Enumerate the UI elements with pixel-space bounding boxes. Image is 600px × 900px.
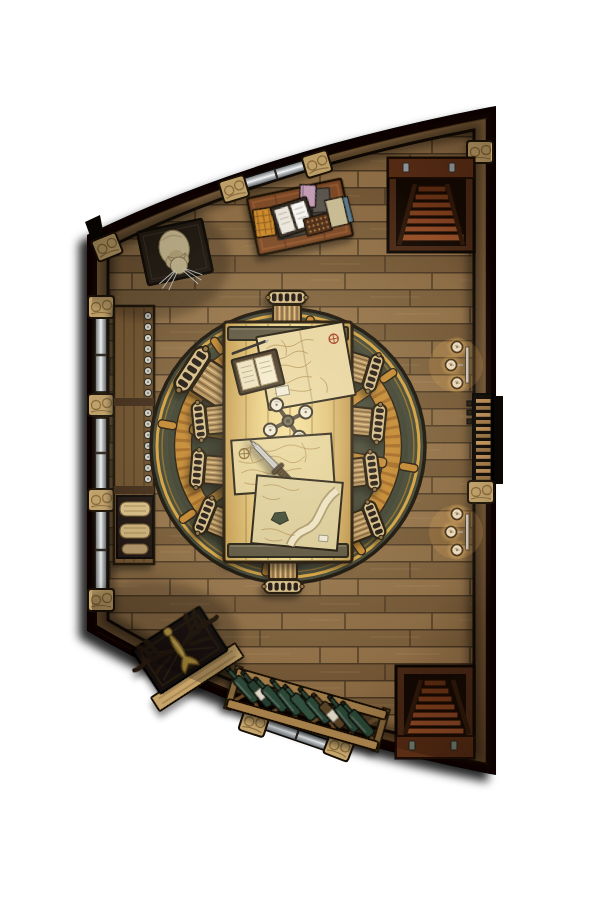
sconce-glow-lower — [429, 505, 483, 559]
battle-map-figure — [0, 0, 600, 900]
map-canvas[interactable] — [0, 0, 600, 900]
sconce-glow-upper — [429, 338, 483, 392]
